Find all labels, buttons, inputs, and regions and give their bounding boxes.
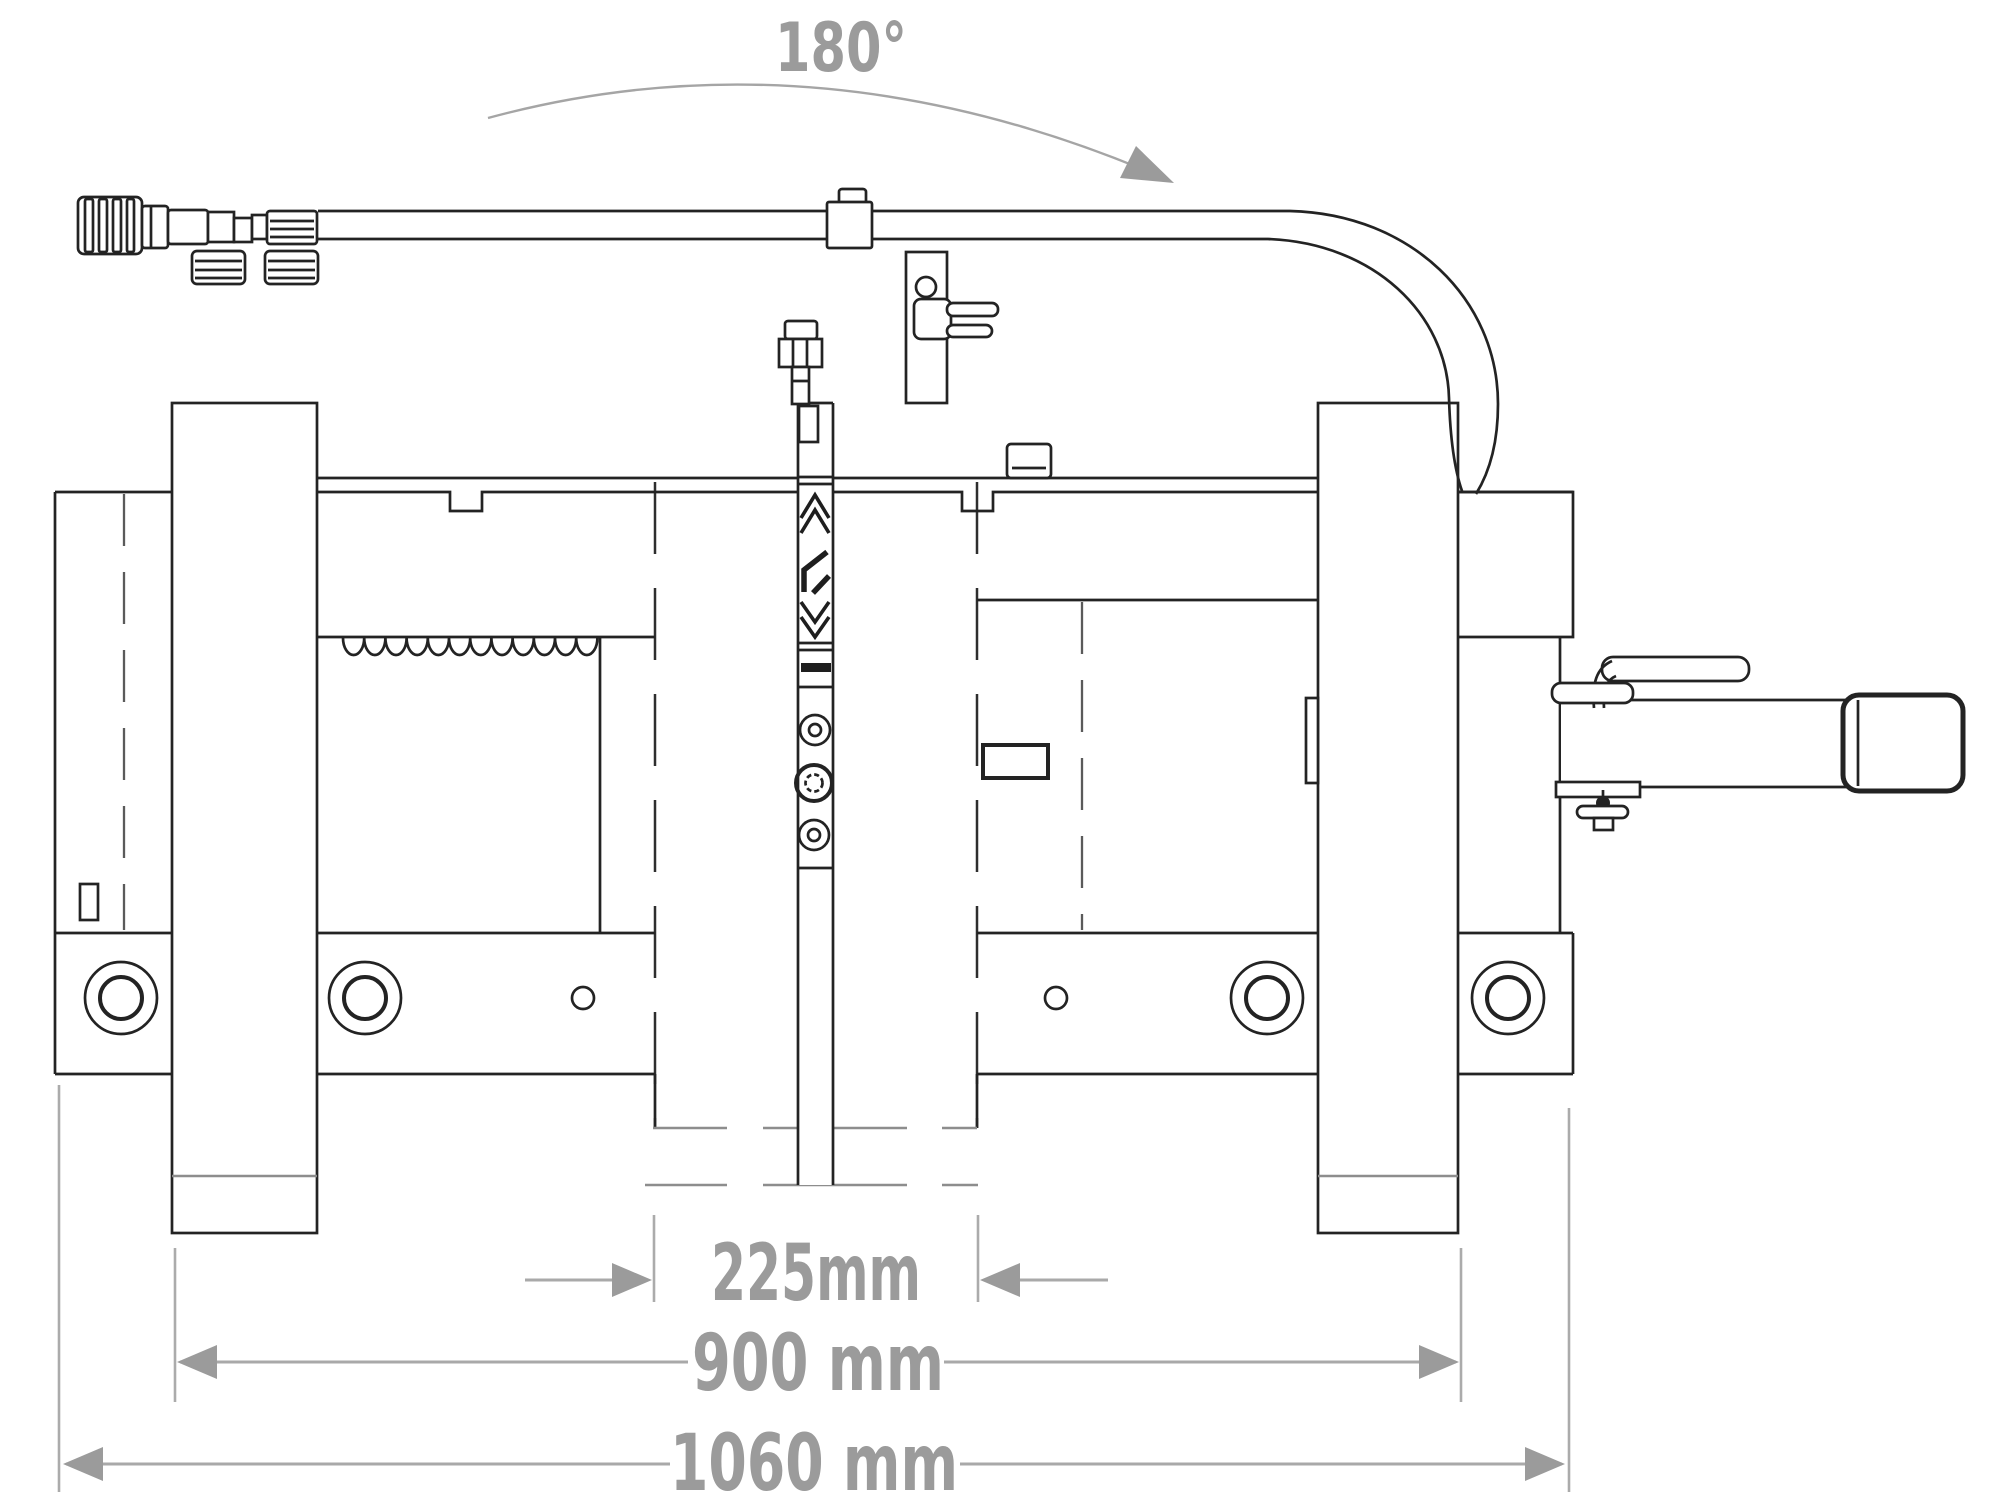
rail-bolt [329,962,401,1034]
machine-body [55,252,1573,1233]
dimension-label-overall: 1060 mm [670,1419,958,1509]
hose-lower-line [318,239,1462,491]
top-cap [1007,444,1051,478]
left-post [172,403,317,1233]
drawing-canvas: 180° 225mm 900 mm 1060 mm [0,0,2016,1512]
coupler-hex [208,212,234,242]
clamp-arm-upper [947,303,998,316]
post-tab [1306,698,1318,783]
body-bracket [80,884,98,920]
rotation-arc [488,85,1168,180]
top-valve [779,321,822,404]
dim-arrow-icon [1419,1345,1459,1379]
dim-arrow-icon [63,1447,103,1481]
rail-hole [1045,987,1067,1009]
dim-arrow-icon [980,1263,1020,1297]
handle-flange-upper [1552,683,1633,703]
rail-bolt [85,962,157,1034]
rotation-arrow-icon [1120,146,1174,183]
clamp-arm-lower [947,325,992,337]
dim-arrow-icon [612,1263,652,1297]
handle-flange-lower [1556,782,1640,797]
right-post [1306,403,1458,1233]
rotation-annotation: 180° [488,9,1174,183]
rotation-angle-label: 180° [775,9,907,88]
handle-grip [1843,695,1963,791]
mounting-lug [906,252,998,403]
inner-plate [983,745,1048,778]
dimension-label-posts: 900 mm [692,1319,944,1409]
technical-drawing: 180° 225mm 900 mm 1060 mm [0,0,2016,1512]
side-box [1458,492,1573,637]
dim-arrow-icon [1525,1447,1565,1481]
swivel-fitting [267,211,317,244]
center-column [796,403,833,1185]
dimension-label-inner: 225mm [711,1229,921,1319]
rail-hole [572,987,594,1009]
rail-bolt [1231,962,1303,1034]
coupler-sleeve [168,210,208,244]
rail-bolt [1472,962,1544,1034]
hose-mid-fitting [827,189,872,248]
tow-handle [1552,657,1963,830]
dim-arrow-icon [177,1345,217,1379]
coupler-neck [142,206,168,248]
quick-coupler [78,197,318,284]
handle-lever [1602,657,1749,681]
serrated-jaw [343,638,597,655]
dimension-inner-225: 225mm [525,1215,1108,1319]
column-mark [801,663,831,672]
clamp-block [914,299,951,339]
